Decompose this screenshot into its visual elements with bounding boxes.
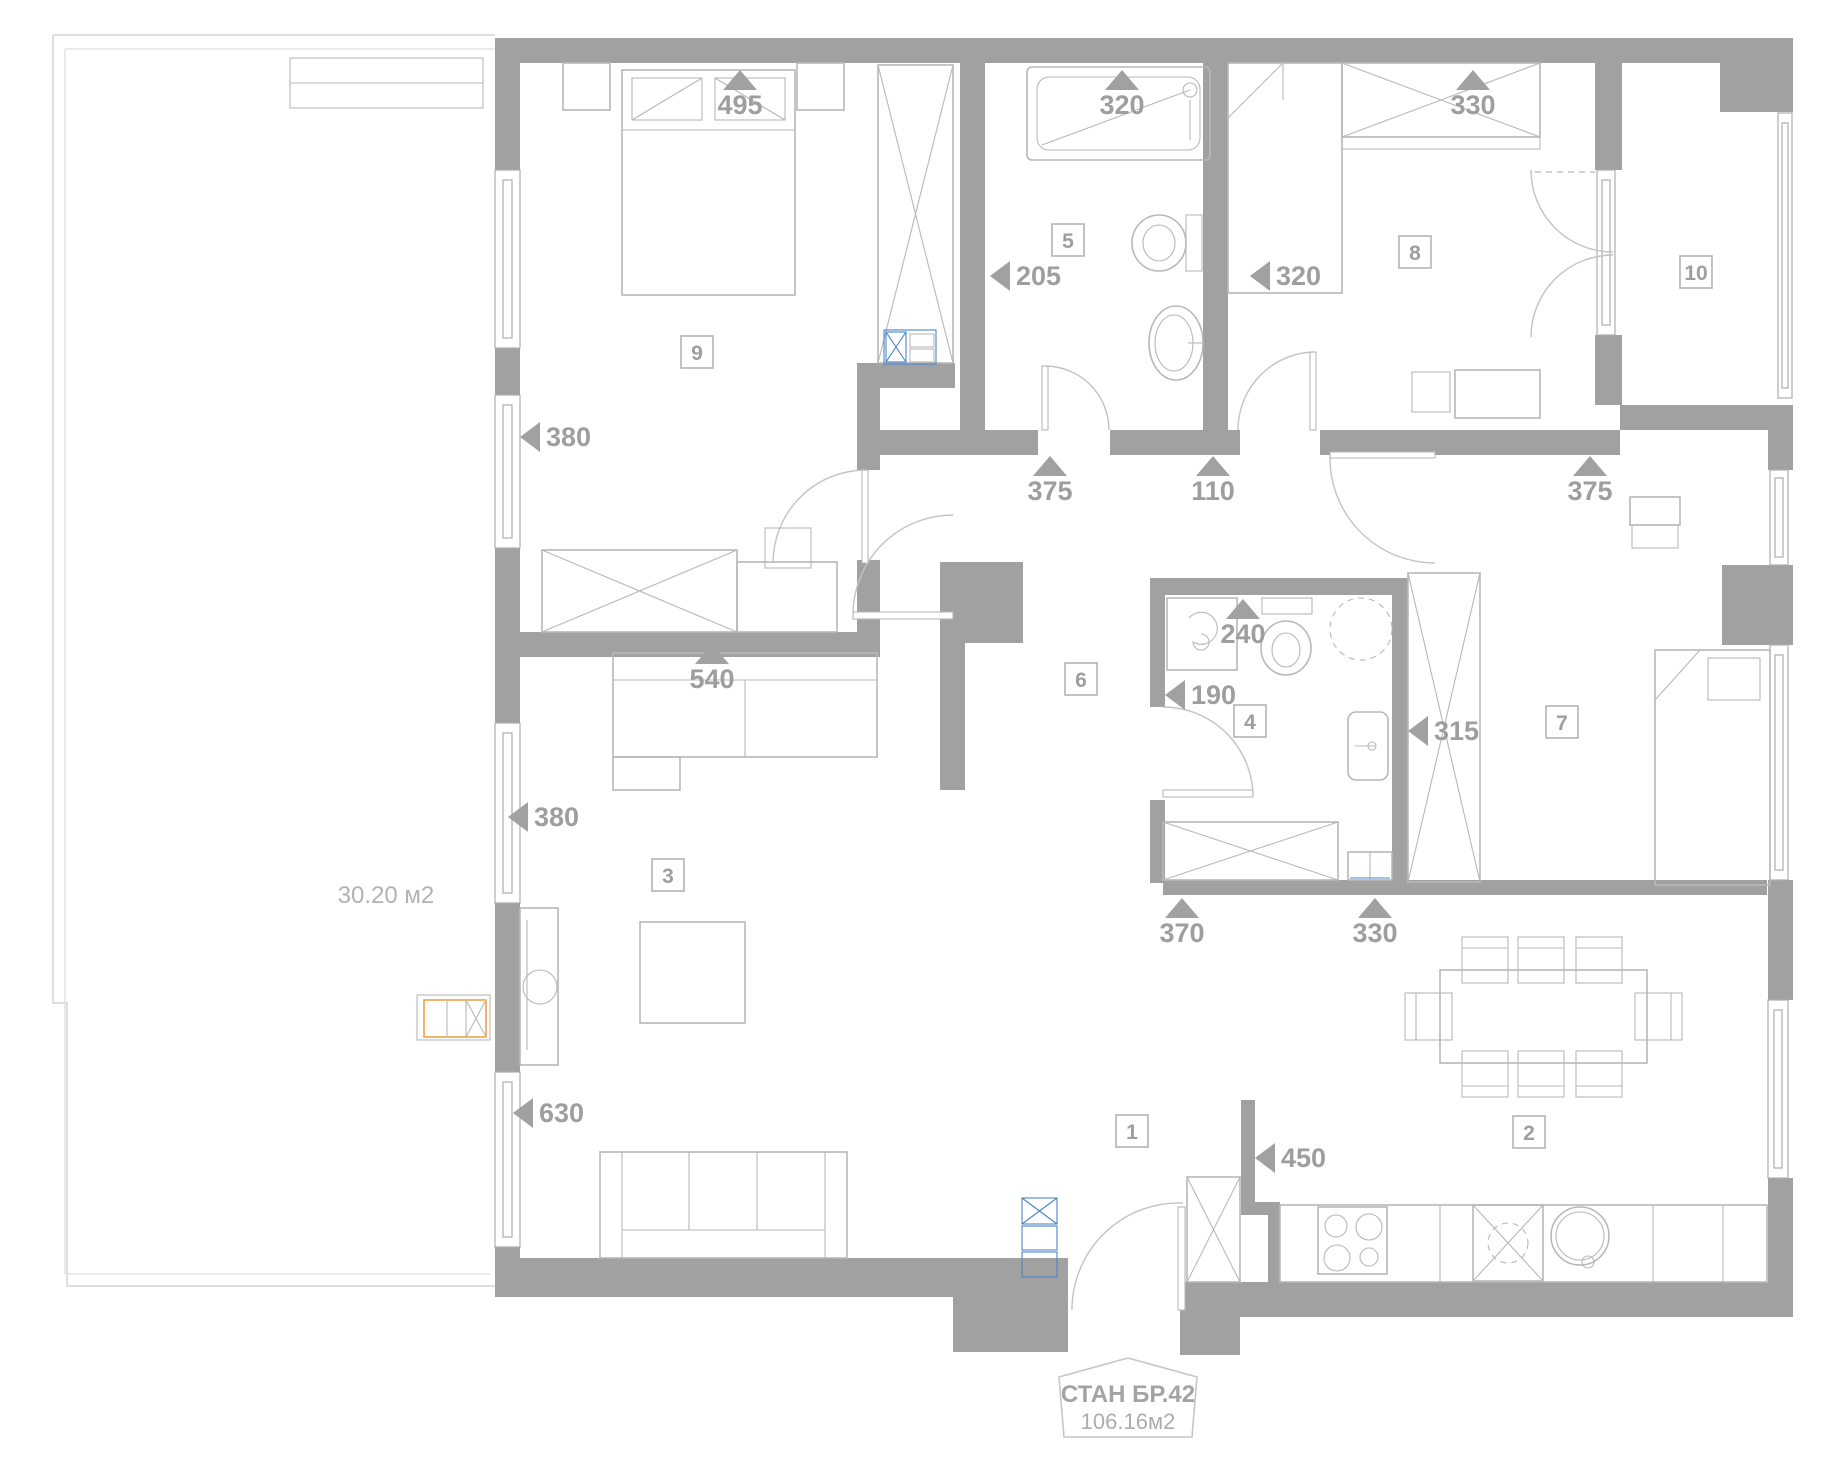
window-room7-lower [1770,645,1788,880]
unit-badge: СТАН БР.42 106.16м2 [1059,1358,1197,1437]
window-bedroom9-lower [495,395,520,548]
room-label-6: 6 [1065,663,1097,695]
room-number: 5 [1062,230,1074,253]
dimension-value: 190 [1191,680,1236,710]
room-label-8: 8 [1399,236,1431,268]
door-bedroom9 [773,470,868,563]
dimension-label-320: 320 [1250,261,1321,291]
living-furniture [417,653,877,1258]
tv-console [520,908,558,1065]
dimension-value: 375 [1027,476,1072,506]
kitchen-dining-furniture [1280,937,1767,1282]
dimension-label-240: 240 [1220,599,1265,649]
desk-bedroom9 [737,562,837,632]
dimension-label-450: 450 [1255,1143,1326,1173]
room-label-1: 1 [1116,1115,1148,1147]
dining-table [1440,970,1647,1063]
floor-plan-svg: 4953203302053203803751103755402401903153… [0,0,1839,1468]
window-bedroom9-upper [495,170,520,348]
dimension-value: 630 [539,1098,584,1128]
dining-chairs [1405,937,1682,1097]
room-number: 2 [1523,1122,1535,1145]
door-bath5 [1042,366,1109,430]
room-label-2: 2 [1513,1116,1545,1148]
dimension-value: 205 [1016,261,1061,291]
room-number: 8 [1409,242,1421,265]
dimension-label-375: 375 [1567,456,1612,506]
dimension-value: 110 [1191,476,1235,506]
single-bed-room8 [1228,63,1342,293]
dimension-value: 540 [689,664,734,694]
dishwasher [1473,1205,1543,1281]
dimension-label-110: 110 [1191,456,1235,506]
door-bedroom8 [1238,352,1316,430]
room-label-5: 5 [1052,224,1084,256]
desk-room7 [1630,497,1680,525]
toilet-bath5 [1132,215,1202,271]
dimension-label-630: 630 [513,1098,584,1128]
chair-room8 [1412,372,1450,412]
dimension-value: 495 [717,90,762,120]
kitchen-sink [1551,1207,1609,1268]
dimension-label-330: 330 [1352,898,1397,948]
dimension-value: 375 [1567,476,1612,506]
room-number: 10 [1684,262,1707,285]
double-bed [622,70,795,295]
unit-badge-area: 106.16м2 [1081,1409,1176,1434]
room-label-10: 10 [1680,256,1712,288]
labels-layer: 4953203302053203803751103755402401903153… [508,70,1712,1173]
terrace-area-label: 30.20 м2 [338,882,435,909]
dimension-label-190: 190 [1165,680,1236,710]
dimension-value: 320 [1099,90,1144,120]
dimension-label-370: 370 [1159,898,1204,948]
sink-bath4 [1348,712,1388,780]
toilet-bath4 [1261,598,1312,675]
bed-room7 [1655,650,1770,885]
wardrobe-bedroom9 [542,550,737,632]
dimension-label-315: 315 [1408,716,1479,746]
dimension-value: 330 [1450,90,1495,120]
dimension-label-330: 330 [1450,70,1495,120]
window-loggia [1778,113,1792,398]
terrace-outline [53,35,495,1286]
room-number: 6 [1075,669,1087,692]
closet-niche-wardrobe [878,65,953,363]
floor-plan: 4953203302053203803751103755402401903153… [0,0,1839,1468]
washer-niche [884,330,936,364]
dimension-label-375: 375 [1027,456,1072,506]
hall-cabinet [1348,852,1392,880]
door-bedroom7 [1330,452,1435,563]
sink-bath5 [1149,306,1203,380]
dimension-value: 370 [1159,918,1204,948]
bedroom9-furniture [542,63,953,632]
room-number: 1 [1126,1121,1138,1144]
dimension-value: 380 [546,422,591,452]
stove [1318,1207,1387,1274]
window-room7-upper [1770,470,1788,565]
window-dining [1768,1000,1788,1178]
dimension-value: 320 [1276,261,1321,291]
room-number: 4 [1244,711,1256,734]
room-label-7: 7 [1546,706,1578,738]
room-label-9: 9 [681,336,713,368]
desk-room8 [1455,370,1540,418]
nightstand-right [797,63,844,110]
dimension-value: 315 [1434,716,1479,746]
dimension-value: 450 [1281,1143,1326,1173]
dimension-label-380: 380 [520,422,591,452]
sofa-three-seat [600,1152,847,1258]
dimension-label-205: 205 [990,261,1061,291]
chair-room7 [1632,525,1678,548]
window-living-lower [495,1072,520,1247]
nightstand-left [563,63,610,110]
bedroom7-furniture [1408,497,1770,885]
door-entrance [1072,1203,1185,1310]
hall-wardrobe [1163,822,1338,880]
room-label-3: 3 [652,859,684,891]
hall-furniture [1163,822,1392,880]
dimension-value: 240 [1220,619,1265,649]
dimension-value: 380 [534,802,579,832]
dimension-value: 330 [1352,918,1397,948]
room-label-4: 4 [1234,705,1266,737]
wardrobe-bedroom8 [1342,63,1540,149]
boiler-dashed [1330,598,1392,660]
kitchen-counter [1280,1205,1767,1282]
entry-wardrobe [1187,1177,1240,1282]
coffee-table [640,922,745,1023]
unit-badge-title: СТАН БР.42 [1061,1381,1195,1408]
corner-sofa [613,653,877,790]
room-number: 9 [691,342,703,365]
room-number: 7 [1556,712,1568,735]
room-number: 3 [662,865,674,888]
ac-unit [417,995,490,1040]
